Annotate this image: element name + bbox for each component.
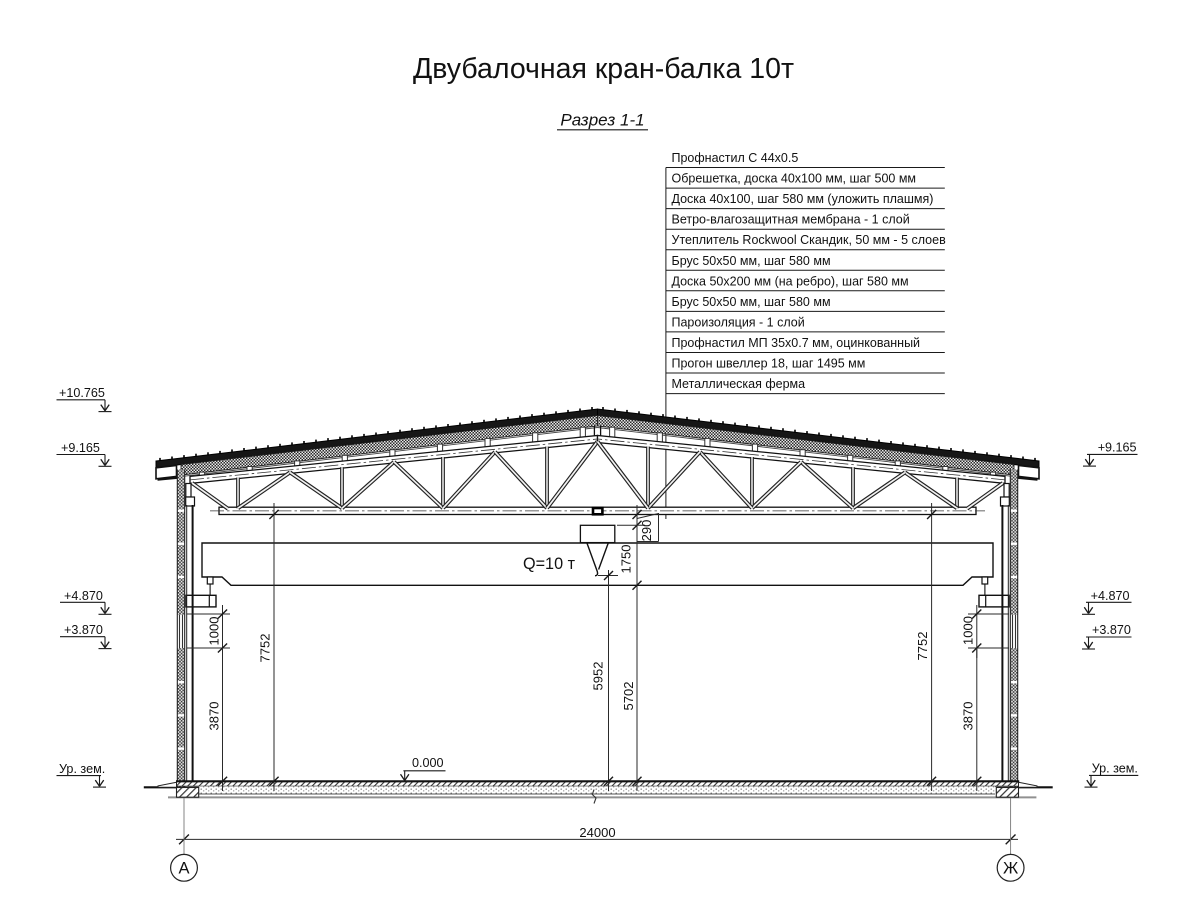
svg-text:0.000: 0.000 <box>412 756 444 770</box>
svg-text:1000: 1000 <box>207 617 222 646</box>
svg-text:3870: 3870 <box>961 702 976 731</box>
svg-text:7752: 7752 <box>915 632 930 661</box>
svg-text:Металлическая ферма: Металлическая ферма <box>672 377 806 391</box>
svg-text:Q=10 т: Q=10 т <box>523 555 576 573</box>
svg-text:290: 290 <box>639 520 654 542</box>
svg-text:Разрез 1-1: Разрез 1-1 <box>560 111 644 130</box>
svg-text:Ветро-влагозащитная мембрана -: Ветро-влагозащитная мембрана - 1 слой <box>672 213 910 227</box>
svg-text:Брус 50х50 мм, шаг 580 мм: Брус 50х50 мм, шаг 580 мм <box>672 295 831 309</box>
svg-text:7752: 7752 <box>258 634 273 663</box>
svg-text:1000: 1000 <box>961 616 976 645</box>
svg-text:+4.870: +4.870 <box>1091 589 1130 603</box>
svg-text:Профнастил С 44х0.5: Профнастил С 44х0.5 <box>672 151 799 165</box>
svg-text:Ж: Ж <box>1003 860 1019 878</box>
svg-text:1750: 1750 <box>619 545 634 574</box>
svg-text:Брус 50х50 мм, шаг 580 мм: Брус 50х50 мм, шаг 580 мм <box>672 254 831 268</box>
svg-text:+3.870: +3.870 <box>64 623 103 637</box>
svg-text:+10.765: +10.765 <box>59 386 105 400</box>
svg-text:5702: 5702 <box>621 682 636 711</box>
svg-text:+9.165: +9.165 <box>61 441 100 455</box>
svg-text:5952: 5952 <box>591 662 606 691</box>
svg-text:Ур. зем.: Ур. зем. <box>1092 762 1138 776</box>
svg-text:Пароизоляция - 1 слой: Пароизоляция - 1 слой <box>672 315 805 329</box>
svg-text:Прогон швеллер 18, шаг 1495 мм: Прогон швеллер 18, шаг 1495 мм <box>672 357 866 371</box>
svg-text:Обрешетка, доска 40х100 мм, ша: Обрешетка, доска 40х100 мм, шаг 500 мм <box>672 172 917 186</box>
svg-text:+3.870: +3.870 <box>1092 623 1131 637</box>
svg-text:Доска 50х200 мм (на ребро), ша: Доска 50х200 мм (на ребро), шаг 580 мм <box>672 274 909 288</box>
svg-text:А: А <box>178 860 189 878</box>
svg-text:Доска 40х100, шаг 580 мм (улож: Доска 40х100, шаг 580 мм (уложить плашмя… <box>672 192 934 206</box>
svg-text:+9.165: +9.165 <box>1098 441 1137 455</box>
svg-text:Двубалочная кран-балка 10т: Двубалочная кран-балка 10т <box>413 53 794 85</box>
svg-text:3870: 3870 <box>207 702 222 731</box>
svg-text:24000: 24000 <box>579 825 615 840</box>
svg-text:Ур. зем.: Ур. зем. <box>59 762 105 776</box>
svg-text:Профнастил МП 35х0.7 мм, оцинк: Профнастил МП 35х0.7 мм, оцинкованный <box>672 336 921 350</box>
svg-text:+4.870: +4.870 <box>64 589 103 603</box>
svg-text:Утеплитель Rockwool Скандик, 5: Утеплитель Rockwool Скандик, 50 мм - 5 с… <box>672 233 947 247</box>
